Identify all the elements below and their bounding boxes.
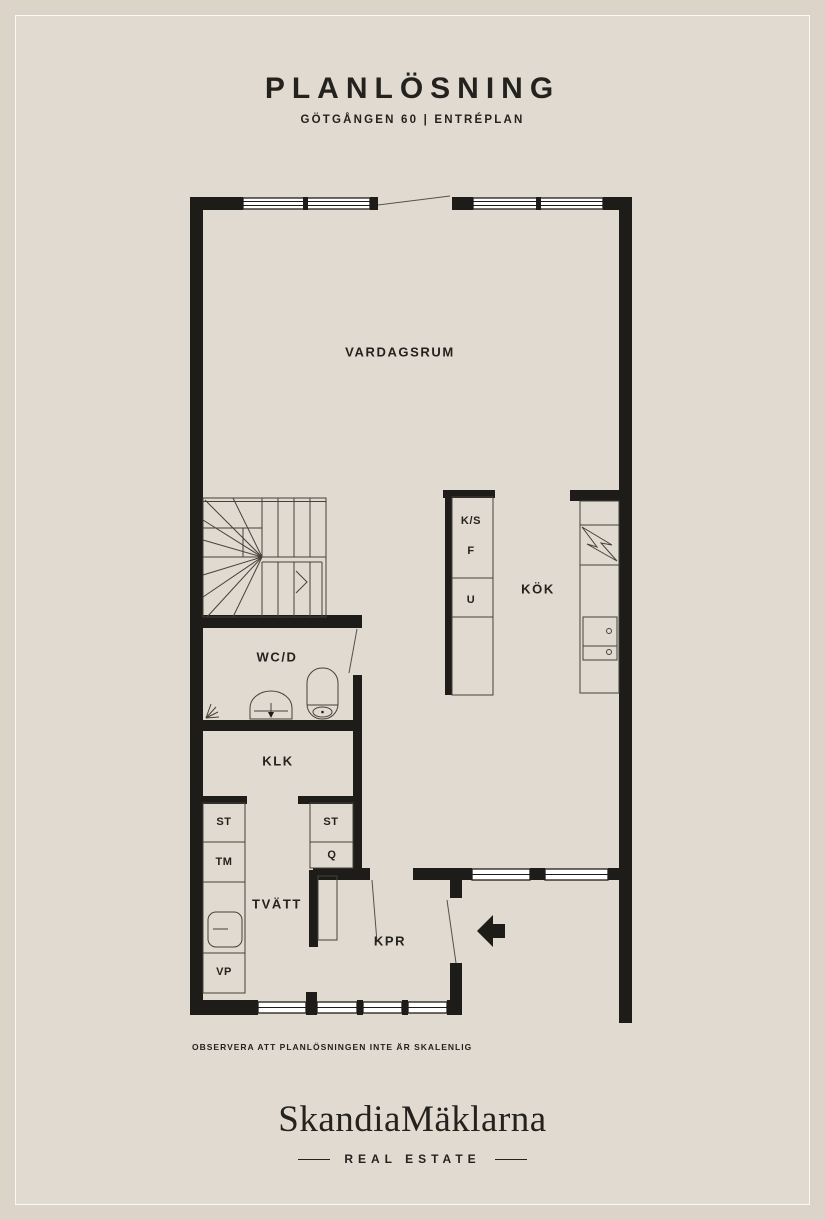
room-label-vardagsrum: VARDAGSRUM: [345, 345, 455, 360]
cabinet-label-f: F: [467, 545, 474, 557]
room-label-wcd: WC/D: [256, 650, 297, 665]
room-label-kok: KÖK: [521, 582, 555, 597]
cabinet-label-st-left: ST: [216, 816, 231, 828]
entrance-arrow-icon: [477, 915, 505, 947]
floor-drain-icon: [206, 704, 219, 718]
cabinet-label-st-right: ST: [323, 816, 338, 828]
cabinet-label-tm: TM: [215, 856, 232, 868]
door-swing-line: [349, 629, 357, 673]
broker-logo: SkandiaMäklarna REAL ESTATE: [0, 1098, 825, 1166]
room-label-klk: KLK: [262, 754, 294, 769]
room-label-tvatt: TVÄTT: [252, 897, 302, 912]
logo-wordmark: SkandiaMäklarna: [0, 1098, 825, 1141]
floorplan-drawing: [0, 0, 825, 1220]
bathroom-fixtures: [206, 668, 338, 719]
logo-tagline: REAL ESTATE: [344, 1152, 480, 1166]
room-label-kpr: KPR: [374, 934, 406, 949]
cabinet-label-q: Q: [327, 849, 336, 861]
stove-zigzag-icon: [582, 527, 617, 561]
cabinet-label-vp: VP: [216, 966, 232, 978]
floorplan-page: PLANLÖSNING GÖTGÅNGEN 60 | ENTRÉPLAN: [0, 0, 825, 1220]
door-swings: [349, 196, 456, 963]
door-swing-line: [378, 196, 450, 205]
stair-direction-arrow: [296, 571, 307, 593]
door-swing-line: [447, 900, 456, 963]
staircase: [203, 498, 326, 617]
cabinet-label-u: U: [467, 594, 476, 606]
logo-dash-right: [495, 1159, 527, 1160]
door-leaf: [318, 876, 337, 940]
cabinet-label-ks: K/S: [461, 515, 481, 527]
scale-disclaimer: OBSERVERA ATT PLANLÖSNINGEN INTE ÄR SKAL…: [192, 1042, 472, 1052]
windows: [243, 197, 608, 1013]
logo-dash-left: [298, 1159, 330, 1160]
